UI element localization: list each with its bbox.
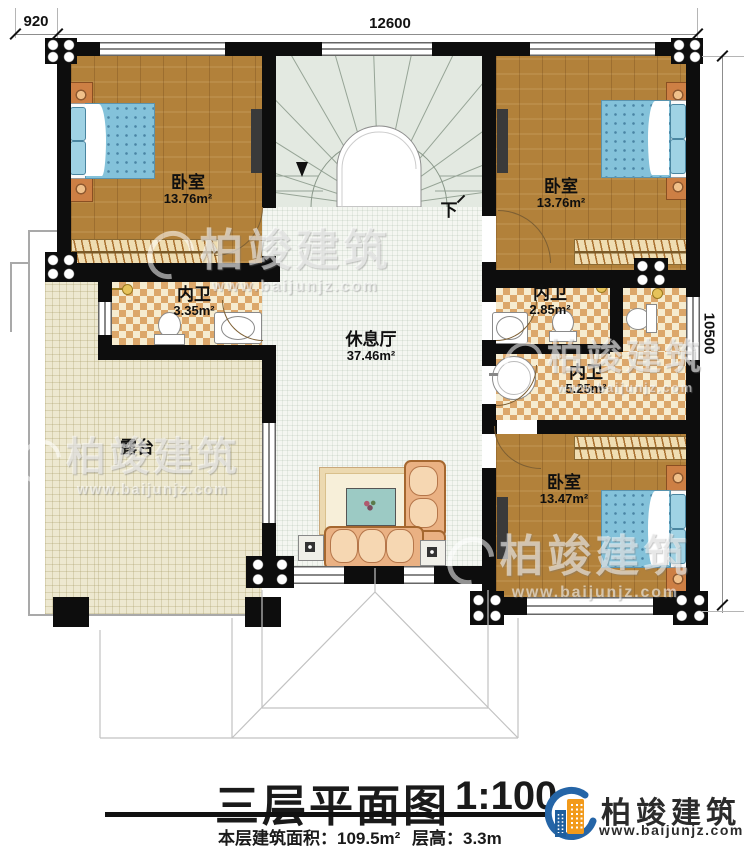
side-table-lamp [305, 542, 315, 552]
wardrobe [574, 436, 689, 460]
wall-segment [57, 263, 280, 282]
wall-segment [57, 42, 71, 263]
room-name: 内卫 [529, 284, 570, 303]
room-area: 13.47m² [540, 492, 588, 507]
floor-area-info: 本层建筑面积：109.5m² [218, 824, 400, 849]
floor-height-info: 层高：3.3m [412, 824, 502, 849]
bed-sheet-fold [648, 101, 669, 175]
wall-segment [482, 404, 496, 420]
tv-unit [251, 109, 262, 173]
shower-knob [652, 288, 663, 299]
structural-column [45, 38, 77, 64]
wall-segment [262, 345, 276, 423]
brand-logo-icon [545, 786, 597, 846]
wall-segment [686, 42, 700, 297]
room-area: 37.46m² [346, 349, 397, 364]
wall-segment [98, 282, 112, 302]
wardrobe [71, 239, 219, 265]
window [322, 42, 432, 56]
wall-segment [610, 288, 623, 352]
nightstand [69, 176, 93, 202]
room-name: 卧室 [537, 177, 585, 196]
room-label-bath-left: 内卫 3.35m² [173, 285, 214, 319]
bed-pillow [670, 139, 686, 174]
brand-website: www.baijunjz.com [599, 822, 744, 838]
down-text: 下 [441, 201, 458, 220]
wall-segment [482, 288, 496, 302]
room-name: 卧室 [164, 173, 212, 192]
terrace-railing-step-v [10, 262, 12, 332]
bed-sheet-fold [85, 104, 106, 176]
room-label-bedroom-top-right: 卧室 13.76m² [537, 177, 585, 211]
room-area: 3.35m² [173, 304, 214, 319]
tv-unit [497, 497, 508, 559]
wall-segment [98, 335, 112, 345]
structural-column [45, 252, 77, 282]
structural-column [634, 258, 668, 288]
wall-segment [262, 256, 276, 282]
window [100, 42, 225, 56]
terrace-railing-left [28, 230, 30, 616]
terrace-railing-step-h [10, 262, 28, 264]
stairs-fan-drawing [276, 56, 482, 207]
dim-line-right [722, 57, 723, 613]
floor-height-label: 层高： [412, 829, 463, 848]
shower-knob [122, 284, 133, 295]
toilet-tank [646, 304, 657, 333]
sofa-cushion [409, 466, 438, 496]
room-label-bath-small: 内卫 2.85m² [529, 284, 570, 318]
window [527, 597, 653, 615]
roof-outline-drawing [60, 556, 530, 780]
room-label-bath-large: 内卫 5.25m² [565, 363, 606, 397]
wall-segment [686, 360, 700, 597]
floor-height-value: 3.3m [463, 829, 502, 848]
room-name: 卧室 [540, 473, 588, 492]
bed-pillow [670, 494, 686, 529]
room-label-hall: 休息厅 37.46m² [346, 330, 397, 364]
window [530, 42, 655, 56]
floor-area-label: 本层建筑面积： [218, 829, 337, 848]
wall-segment [482, 340, 496, 366]
dim-label-920: 920 [16, 13, 56, 30]
title-underline [105, 812, 548, 817]
stairs-down-arrow-icon [296, 162, 308, 177]
room-label-bedroom-bottom-right: 卧室 13.47m² [540, 473, 588, 507]
room-name: 内卫 [173, 285, 214, 304]
tv-unit [497, 109, 508, 173]
dim-line-top [15, 34, 698, 35]
window [686, 297, 700, 360]
room-label-bedroom-top-left: 卧室 13.76m² [164, 173, 212, 207]
bed-pillow [70, 107, 86, 141]
wall-segment [482, 42, 496, 216]
dim-extension [702, 611, 744, 612]
wall-segment [98, 345, 262, 360]
floor-area-value: 109.5m² [337, 829, 400, 848]
room-name: 内卫 [565, 363, 606, 382]
wall-segment [482, 344, 610, 354]
wall-segment [537, 420, 700, 434]
room-area: 13.76m² [537, 196, 585, 211]
floor-plan-page: { "dimensions": { "left": "920", "top": … [0, 0, 750, 851]
dim-label-10500: 10500 [701, 299, 718, 369]
terrace-railing-top [28, 230, 58, 232]
window [98, 302, 112, 335]
bed-pillow [70, 141, 86, 175]
toilet-tank [549, 331, 577, 342]
wardrobe [574, 239, 689, 265]
wall-segment [432, 42, 530, 56]
room-label-terrace: 露台 [120, 438, 154, 457]
stairs-down-label: 下 [441, 201, 458, 220]
structural-column [671, 38, 703, 64]
room-area: 13.76m² [164, 192, 212, 207]
bed-pillow [670, 104, 686, 139]
structural-column [673, 591, 708, 625]
room-name: 休息厅 [346, 330, 397, 349]
window [262, 423, 276, 523]
bed-sheet-fold [648, 491, 669, 565]
toilet-tank [154, 334, 185, 345]
wall-segment [262, 42, 276, 208]
room-name: 露台 [120, 438, 154, 457]
coffee-table-decor [362, 498, 378, 512]
room-area: 5.25m² [565, 382, 606, 397]
sofa-cushion [409, 498, 438, 528]
bed-pillow [670, 529, 686, 564]
room-area: 2.85m² [529, 303, 570, 318]
dim-label-12600: 12600 [348, 15, 432, 32]
